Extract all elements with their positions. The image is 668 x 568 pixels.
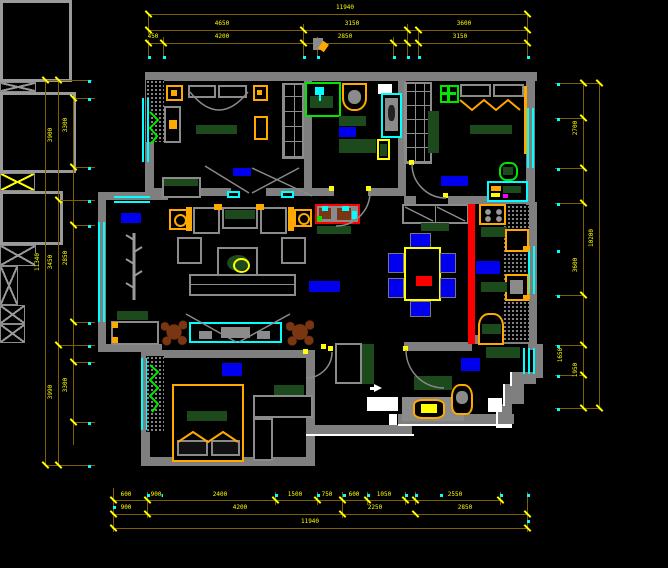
room-label-bath2 <box>461 358 480 371</box>
bed2-pillow-cell-a <box>460 84 491 97</box>
dimension-witness-dot <box>557 295 560 298</box>
dimension-label: 2850 <box>458 505 472 511</box>
window-bedroom2-right <box>527 108 535 168</box>
bed1-pillow-cell-b <box>218 85 247 98</box>
sofa-seat-left <box>193 207 220 234</box>
dimension-label: 4650 <box>215 21 229 27</box>
room-label-bedroom3 <box>222 363 242 376</box>
sofa-arm-left <box>186 207 192 231</box>
dimension-witness-dot <box>147 494 150 497</box>
dimension-line <box>148 43 527 44</box>
outline-entry <box>306 434 414 436</box>
wardrobe-bedroom1 <box>282 83 304 159</box>
shelf-item-3 <box>322 206 328 211</box>
dimension-label: 2850 <box>63 251 69 265</box>
dining-chair-left-1 <box>388 253 404 273</box>
window-bedroom3-left <box>141 358 147 430</box>
hinge-6 <box>403 346 408 351</box>
wall-top <box>145 72 537 81</box>
room-label-corridor <box>441 176 468 186</box>
dimension-witness-dot <box>163 56 166 59</box>
dimension-label: 3900 <box>48 128 54 142</box>
dimension-witness-dot <box>393 56 396 59</box>
bed3-foot-drawer-a <box>177 440 208 456</box>
dimension-line <box>112 528 527 529</box>
room-label-bedroom1 <box>233 168 251 176</box>
room-label-bath1 <box>339 127 356 137</box>
bed-bedroom1 <box>0 0 72 82</box>
dimension-label: 11940 <box>301 519 319 525</box>
dimension-line <box>112 500 503 501</box>
dimension-label: 900 <box>151 492 162 498</box>
rug-line <box>189 284 296 285</box>
basin-bowl-bath2 <box>421 404 437 413</box>
corner-cabinet-post-b <box>112 337 118 343</box>
dimension-label: 3300 <box>63 118 69 132</box>
dresser-knob <box>169 120 177 129</box>
chair-seat <box>503 167 513 175</box>
bed1-pillow-cell-a <box>188 85 216 98</box>
dimension-witness-dot <box>148 56 151 59</box>
hinge-2 <box>366 186 371 191</box>
kitchen-counter-b <box>481 282 507 292</box>
wardrobe-bedroom3-side <box>253 418 273 461</box>
dimension-label: 2700 <box>573 121 579 135</box>
dimension-label: 900 <box>121 505 132 511</box>
dimension-witness-dot <box>88 167 91 170</box>
plant-left <box>161 318 187 346</box>
dimension-witness-dot <box>113 506 116 509</box>
dimension-witness-dot <box>557 83 560 86</box>
bed2-blanket <box>470 125 512 134</box>
shoe-cabinet <box>335 343 362 384</box>
window-balcony <box>523 348 538 374</box>
dimension-witness-dot <box>88 225 91 228</box>
shoe-cabinet-x2 <box>0 324 25 343</box>
shower-stem <box>319 95 321 101</box>
dining-chair-left-2 <box>388 278 404 298</box>
sofa-center-cushion <box>225 210 255 219</box>
dimension-label: 11940 <box>336 5 354 11</box>
shoe-cabinet-x1 <box>0 305 25 324</box>
shower-head <box>315 87 324 95</box>
dimension-label: 3600 <box>457 21 471 27</box>
bath1-shelf-a <box>339 116 366 126</box>
toilet-seat-bath1 <box>348 90 361 104</box>
toilet-seat-bath2 <box>456 391 468 404</box>
dining-cabinet-base <box>421 223 449 231</box>
outline-step4 <box>496 426 512 428</box>
dimension-witness-dot <box>88 80 91 83</box>
desk-item-4 <box>503 194 508 198</box>
armchair-right <box>281 237 306 264</box>
room-label-living-a <box>121 213 141 223</box>
dimension-witness-dot <box>405 494 408 497</box>
armchair-left <box>177 237 202 264</box>
entry-label-block <box>367 397 398 411</box>
window-bedroom1-left <box>142 98 149 162</box>
dimension-label: 3300 <box>63 378 69 392</box>
dimension-line <box>45 80 46 465</box>
kitchen-handle-a <box>523 246 530 250</box>
dimension-line <box>112 514 527 515</box>
dimension-witness-dot <box>500 494 503 497</box>
dimension-witness-dot <box>557 408 560 411</box>
dimension-witness-dot <box>527 520 530 523</box>
dimension-witness-dot <box>303 56 306 59</box>
desk-item-1 <box>491 186 501 191</box>
desk-item-3 <box>491 193 500 197</box>
dimension-witness-dot <box>88 362 91 365</box>
floorplan-canvas[interactable]: 1194046503150360045042002850315011340390… <box>0 0 668 568</box>
fan-blade-h <box>442 92 456 95</box>
dimension-line <box>45 80 92 81</box>
window-bench <box>117 311 148 320</box>
dimension-witness-dot <box>557 118 560 121</box>
wall-hall-dining <box>404 342 472 351</box>
dimension-label: 2850 <box>338 34 352 40</box>
dimension-line <box>148 14 527 15</box>
dimension-line <box>163 37 164 58</box>
shelf-item-6 <box>317 216 322 221</box>
dimension-label: 1050 <box>377 492 391 498</box>
tv <box>221 327 250 338</box>
dimension-line <box>58 80 59 465</box>
dimension-label: 3450 <box>48 255 54 269</box>
sofa-deco-a <box>214 204 222 210</box>
hinge-5 <box>328 346 333 351</box>
shower-bench <box>310 96 333 108</box>
bed3-mattress <box>0 191 63 245</box>
bench-base <box>0 82 36 92</box>
vanity-bedroom1 <box>254 116 268 140</box>
dimension-label: 4200 <box>215 34 229 40</box>
dimension-witness-dot <box>557 375 560 378</box>
dining-table-runner <box>416 276 432 286</box>
dimension-witness-dot <box>557 203 560 206</box>
window-living-left <box>98 222 106 322</box>
bed3-foot-drawer-b <box>211 440 240 456</box>
hinge-3 <box>409 160 414 165</box>
bed2-trim <box>524 86 527 154</box>
dimension-witness-dot <box>88 322 91 325</box>
dining-cabinet-divider <box>435 206 436 222</box>
wall-vent-left <box>227 191 240 198</box>
dimension-label: 450 <box>148 34 159 40</box>
outline-threshold <box>389 414 397 425</box>
dimension-witness-dot <box>418 56 421 59</box>
plant-right <box>286 318 314 346</box>
bed-bedroom2 <box>0 92 76 173</box>
lamp-left <box>171 90 177 96</box>
desk-item-2 <box>503 186 521 193</box>
wardrobe-bedroom3-x1 <box>0 245 36 266</box>
bath1-cabinet-fill <box>380 144 387 156</box>
wall-vent-right <box>281 191 294 198</box>
dining-table <box>404 247 441 301</box>
dimension-label: 750 <box>322 492 333 498</box>
dimension-line <box>148 30 527 31</box>
dimension-label: 4200 <box>233 505 247 511</box>
dimension-label: 10200 <box>589 229 595 247</box>
wardrobe-bedroom3-x2 <box>0 266 18 305</box>
dimension-witness-dot <box>527 494 530 497</box>
dimension-label: 11340 <box>35 253 41 271</box>
kitchen-counter-a <box>481 227 507 237</box>
dimension-witness-dot <box>367 494 370 497</box>
dimension-label: 3990 <box>48 385 54 399</box>
basin-bowl <box>388 105 395 121</box>
dining-chair-right-1 <box>440 253 456 273</box>
sliding-door-track <box>468 204 475 344</box>
dimension-label: 2400 <box>213 492 227 498</box>
dimension-line <box>527 14 528 58</box>
hatch-bedroom3-left <box>146 356 164 432</box>
sink-bowl <box>510 280 523 294</box>
coffee-plant-deco <box>233 258 250 273</box>
dimension-label: 2550 <box>448 492 462 498</box>
dimension-line <box>555 408 599 409</box>
hinge-8 <box>321 344 326 349</box>
dimension-label: 600 <box>121 492 132 498</box>
dimension-witness-dot <box>317 56 320 59</box>
dimension-witness-dot <box>88 422 91 425</box>
tv-speaker-right <box>257 331 270 339</box>
dimension-witness-dot <box>317 494 320 497</box>
bedroom3-shelf <box>274 385 304 395</box>
window-living-top <box>114 194 150 203</box>
dimension-witness-dot <box>407 56 410 59</box>
shoe-cabinet-side <box>362 344 374 384</box>
dimension-line <box>73 98 74 445</box>
bed2-pillow-cell-b <box>493 84 524 97</box>
hinge-4 <box>443 193 448 198</box>
shelf-item-4 <box>342 206 349 211</box>
dimension-label: 1650 <box>558 348 564 362</box>
room-label-living-b <box>309 281 340 292</box>
dimension-line <box>583 83 584 410</box>
dining-chair-top <box>410 233 431 248</box>
dimension-label: 3600 <box>573 258 579 272</box>
dining-chair-right-2 <box>440 278 456 298</box>
sofa-seat-right <box>260 207 287 234</box>
rug <box>189 274 296 296</box>
stove <box>479 204 506 225</box>
dimension-witness-dot <box>88 98 91 101</box>
dimension-witness-dot <box>527 56 530 59</box>
entry-shelf-base <box>317 226 351 234</box>
bench-top <box>164 179 198 186</box>
room-label-kitchen <box>476 261 500 274</box>
dining-chair-bottom <box>410 301 431 317</box>
entry-arrow-tail <box>370 387 376 390</box>
wall-bedroom2-bottom-a <box>404 196 416 204</box>
dimension-witness-dot <box>557 168 560 171</box>
dimension-label: 600 <box>349 492 360 498</box>
dimension-label: 1500 <box>288 492 302 498</box>
dimension-line <box>393 37 394 58</box>
wall-bedroom3-top <box>141 350 313 358</box>
sofa-deco-b <box>256 204 264 210</box>
bed2-side-cabinet <box>428 111 439 153</box>
outline-step2 <box>503 384 505 406</box>
dimension-line <box>555 83 599 84</box>
dimension-label: 3150 <box>453 34 467 40</box>
dimension-witness-dot <box>415 494 418 497</box>
side-table-right-deco <box>298 213 310 225</box>
dimension-line <box>599 83 600 410</box>
lamp-right <box>257 90 262 95</box>
outline-step1 <box>510 372 512 386</box>
bath2-shelf-a <box>414 376 452 390</box>
bath2-fixture <box>488 398 502 412</box>
bed1-blanket <box>196 125 237 134</box>
dimension-label: 3150 <box>345 21 359 27</box>
washing-machine-band <box>482 324 501 334</box>
shelf-item-5 <box>352 211 357 219</box>
bath1-shelf-b <box>339 139 376 153</box>
dimension-witness-dot <box>557 250 560 253</box>
dimension-witness-dot <box>88 345 91 348</box>
hinge-7 <box>303 349 308 354</box>
corner-cabinet-deco <box>0 173 35 191</box>
wardrobe-bedroom3-top <box>253 395 313 418</box>
dimension-witness-dot <box>440 494 443 497</box>
window-kitchen-right <box>528 246 536 294</box>
dimension-witness-dot <box>275 494 278 497</box>
dimension-witness-dot <box>88 465 91 468</box>
wall-entry-bottom <box>306 425 412 434</box>
dimension-label: 1950 <box>573 363 579 377</box>
kitchen-handle-b <box>523 295 530 299</box>
outline-bath2 <box>398 424 512 426</box>
corner-cabinet-post-a <box>112 322 118 328</box>
corner-cabinet <box>111 321 159 345</box>
tv-speaker-left <box>199 331 212 339</box>
hinge-1 <box>329 186 334 191</box>
dimension-witness-dot <box>343 494 346 497</box>
bath2-shelf-b <box>486 347 520 358</box>
bed3-pillow <box>187 411 227 421</box>
dimension-label: 2250 <box>368 505 382 511</box>
dimension-witness-dot <box>88 200 91 203</box>
wall-step2 <box>505 384 524 404</box>
